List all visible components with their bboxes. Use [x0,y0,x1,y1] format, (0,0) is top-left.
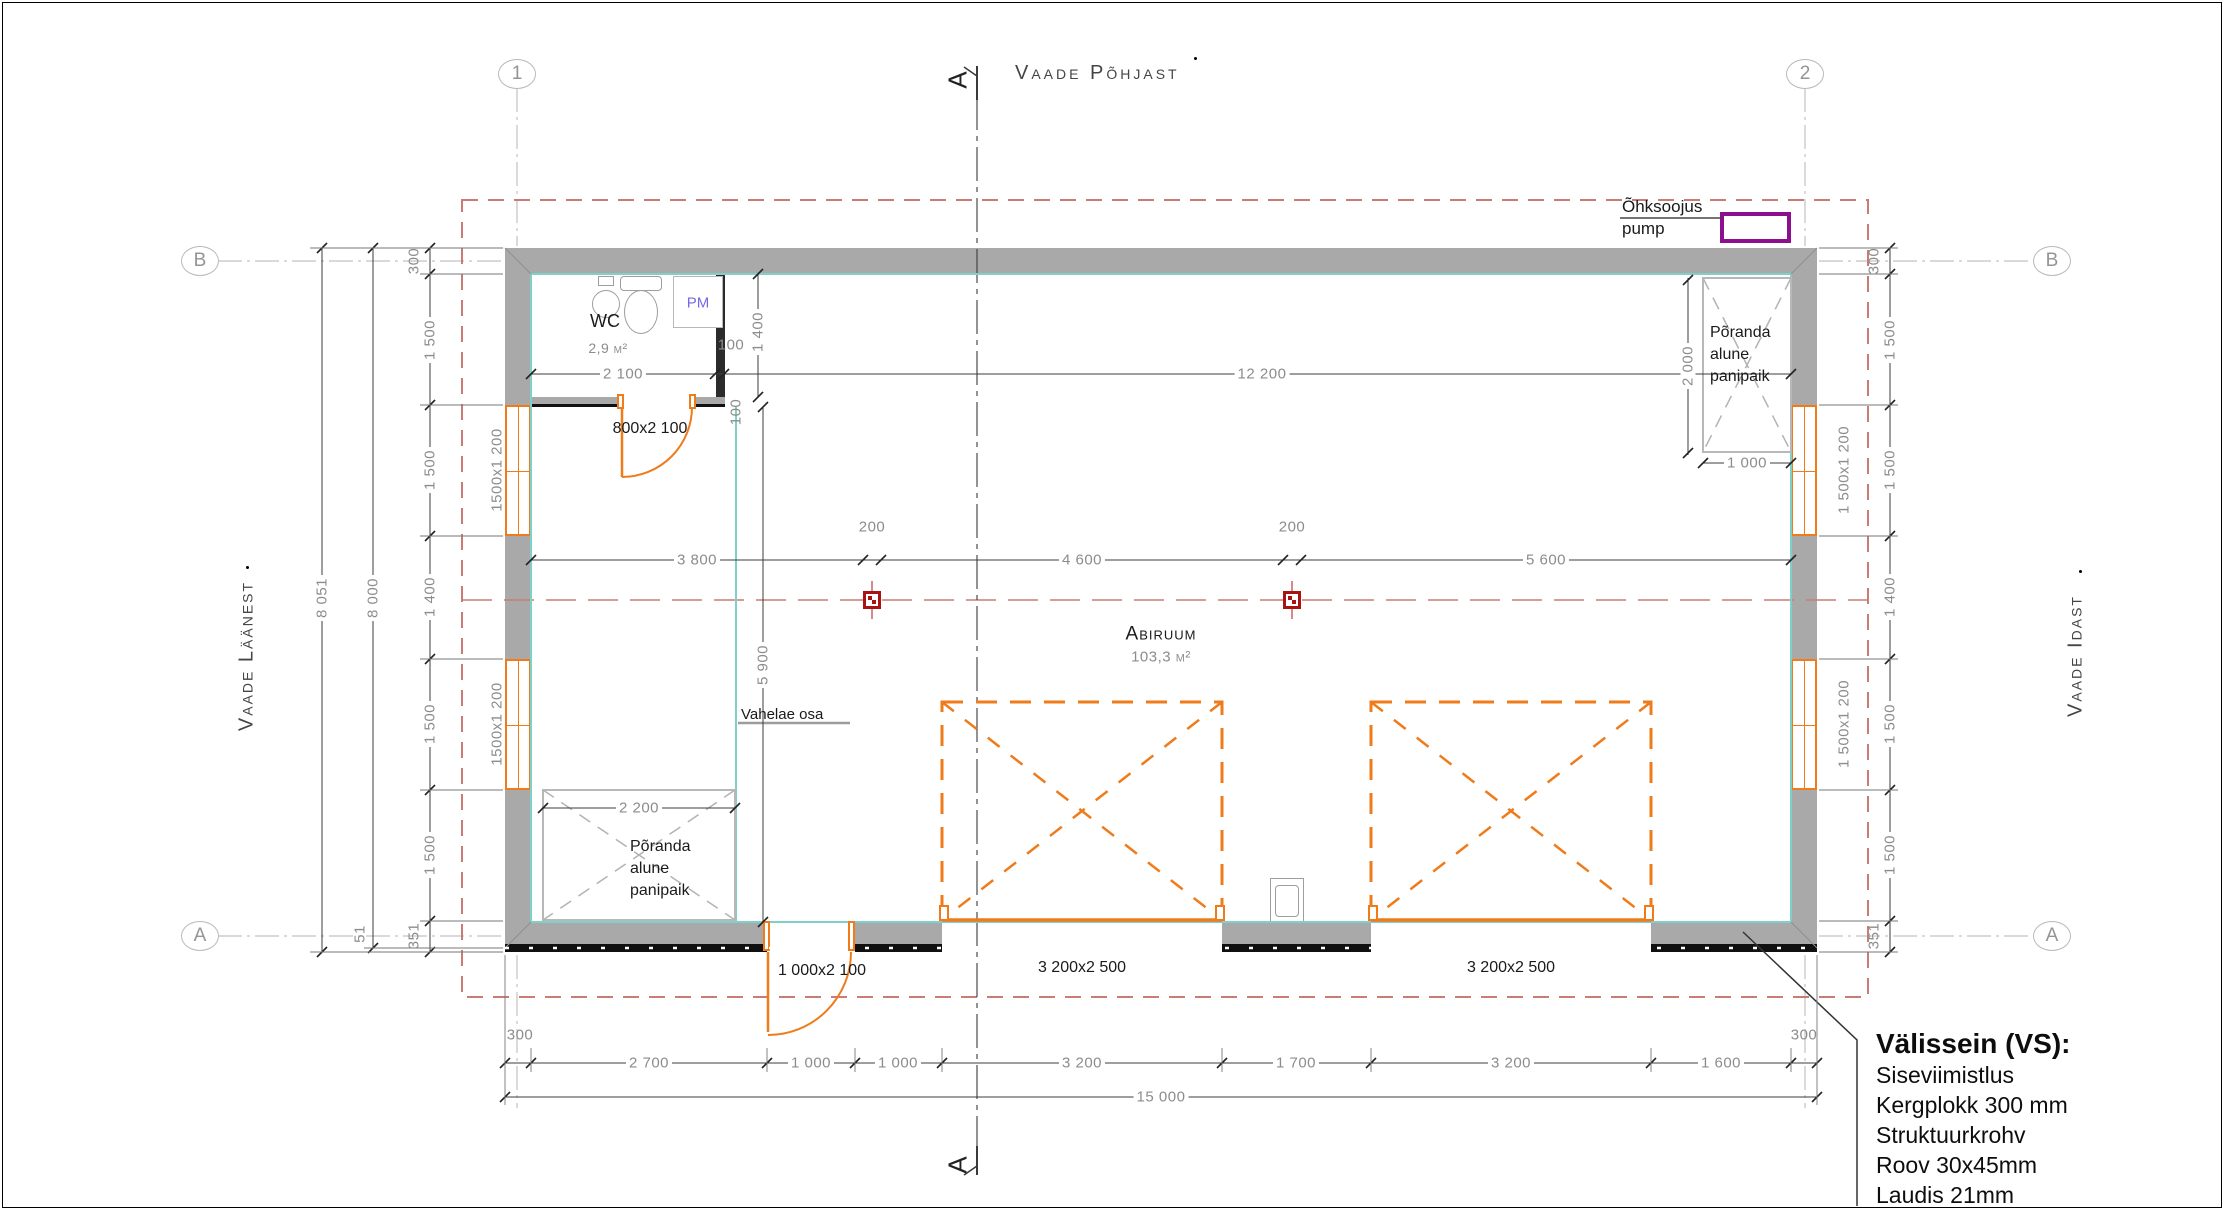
dim-door-wall: 100 [729,396,744,429]
note-leader [1743,932,1857,1206]
post-1 [863,591,881,609]
dim-bottom-1: 2 700 [626,1056,672,1071]
dim-storage-bl-width: 2 200 [616,801,662,816]
grid-bubble-a-left: A [181,921,219,951]
dim-left-chain-4: 1 500 [423,701,438,747]
dim-left-chain-1: 1 500 [423,317,438,363]
dim-left-chain-6: 351 [407,920,422,953]
dim-mid-b: 4 600 [1059,553,1105,568]
dim-left-chain-0: 300 [407,245,422,278]
wall-note: Välissein (VS): Siseviimistlus Kergplokk… [1876,1028,2071,1210]
window-label-left-2: 1500x1 200 [490,679,505,768]
dim-room-height: 5 900 [756,642,771,688]
dim-right-chain-6: 351 [1867,920,1882,953]
dim-right-chain-5: 1 500 [1883,832,1898,878]
dim-bottom-5: 1 700 [1273,1056,1319,1071]
post-mark [872,600,876,604]
pump-label-line: pump [1622,218,1702,240]
storage-label-line: alune [630,858,691,880]
door-label-wc: 800x2 100 [613,421,688,437]
pump-label-line: Õhksoojus [1622,196,1702,218]
dim-post-2: 200 [1276,520,1309,535]
grid-bubble-b-right: B [2033,246,2071,276]
grid-bubble-b-left: B [181,246,219,276]
storage-top-label: Põranda alune panipaik [1710,322,1771,388]
grid-bubble-1: 1 [498,59,536,89]
section-letter-bottom: A [943,1156,974,1173]
dim-wc-wall: 100 [715,338,748,353]
storage-label-line: Põranda [1710,322,1771,344]
grid-label: 2 [1800,63,1811,85]
storage-label-line: panipaik [630,880,691,902]
room-name-abiruum: Abiruum [1126,625,1197,644]
door-label-garage-2: 3 200x2 500 [1467,960,1555,976]
view-title-north: Vaade Põhjast [1015,60,1180,86]
dim-left-overall: 8 051 [315,575,330,621]
dim-right-chain-1: 1 500 [1883,317,1898,363]
view-east-mark [2079,570,2082,573]
post-2 [1283,591,1301,609]
grid-bubble-a-right: A [2033,921,2071,951]
dim-bottom-total: 15 000 [1134,1090,1189,1105]
dim-wc-width: 2 100 [600,367,646,382]
wall-note-title: Välissein (VS): [1876,1028,2071,1060]
dim-mid-a: 3 800 [674,553,720,568]
dim-storage-height: 2 000 [1681,343,1696,389]
dim-storage-width: 1 000 [1724,456,1770,471]
storage-label-line: alune [1710,344,1771,366]
dim-bottom-2: 1 000 [788,1056,834,1071]
wall-note-line: Siseviimistlus [1876,1060,2071,1090]
storage-label-line: panipaik [1710,366,1771,388]
section-letter-top: A [943,71,974,88]
view-west-mark [246,566,249,569]
dim-bottom-0: 300 [504,1028,537,1043]
view-title-east: Vaade Idast [2065,595,2088,717]
grid-label: A [2046,925,2059,947]
garage-door-1 [940,702,1224,920]
grid-label: 1 [512,63,523,85]
dim-left-chain-3: 1 400 [423,574,438,620]
door-label-garage-1: 3 200x2 500 [1038,960,1126,976]
door-label-entry: 1 000x2 100 [778,963,866,979]
dim-bottom-6: 3 200 [1488,1056,1534,1071]
wall-note-line: Struktuurkrohv [1876,1120,2071,1150]
dim-mid-c: 5 600 [1523,553,1569,568]
room-area-abiruum: 103,3 m² [1128,650,1194,665]
garage-door-2 [1369,702,1653,920]
grid-label: A [194,925,207,947]
window-label-right-1: 1 500x1 200 [1837,423,1852,517]
dim-left-extra: 51 [353,922,368,946]
dim-right-chain-3: 1 400 [1883,574,1898,620]
dim-main-width: 12 200 [1235,367,1290,382]
dim-left-chain-5: 1 500 [423,832,438,878]
heat-pump-unit [1720,212,1791,243]
post-mark [1292,600,1296,604]
vahelae-label: Vahelae osa [741,705,823,725]
view-north-mark [1194,57,1197,60]
dim-left-inner: 8 000 [366,575,381,621]
dim-bottom-3: 1 000 [875,1056,921,1071]
wall-note-line: Roov 30x45mm [1876,1150,2071,1180]
dim-bottom-8: 300 [1788,1028,1821,1043]
extension-lines [310,248,1898,1105]
dim-right-chain-4: 1 500 [1883,701,1898,747]
washing-machine-label: PM [687,296,710,311]
wall-note-line: Laudis 21mm [1876,1180,2071,1210]
room-area-wc: 2,9 m² [585,341,630,355]
grid-label: B [2046,250,2059,272]
section-line [964,66,977,1175]
dim-left-chain-2: 1 500 [423,447,438,493]
grid-bubble-2: 2 [1786,59,1824,89]
grid-label: B [194,250,207,272]
heat-pump-label: Õhksoojus pump [1622,196,1702,240]
storage-label-line: Põranda [630,836,691,858]
dim-post-1: 200 [856,520,889,535]
dim-right-chain-2: 1 500 [1883,447,1898,493]
room-name-wc: WC [590,312,620,330]
storage-bottom-label: Põranda alune panipaik [630,836,691,902]
window-label-right-2: 1 500x1 200 [1837,677,1852,771]
dim-bottom-4: 3 200 [1059,1056,1105,1071]
dim-right-chain-0: 300 [1867,245,1882,278]
window-label-left-1: 1500x1 200 [490,425,505,514]
wall-note-line: Kergplokk 300 mm [1876,1090,2071,1120]
view-title-west: Vaade Läänest [236,581,259,731]
dim-bottom-7: 1 600 [1698,1056,1744,1071]
floor-plan-canvas: 1 2 B B A A Vaade Põhjast Vaade Läänest … [0,0,2224,1210]
dim-wc-height: 1 400 [751,309,766,355]
